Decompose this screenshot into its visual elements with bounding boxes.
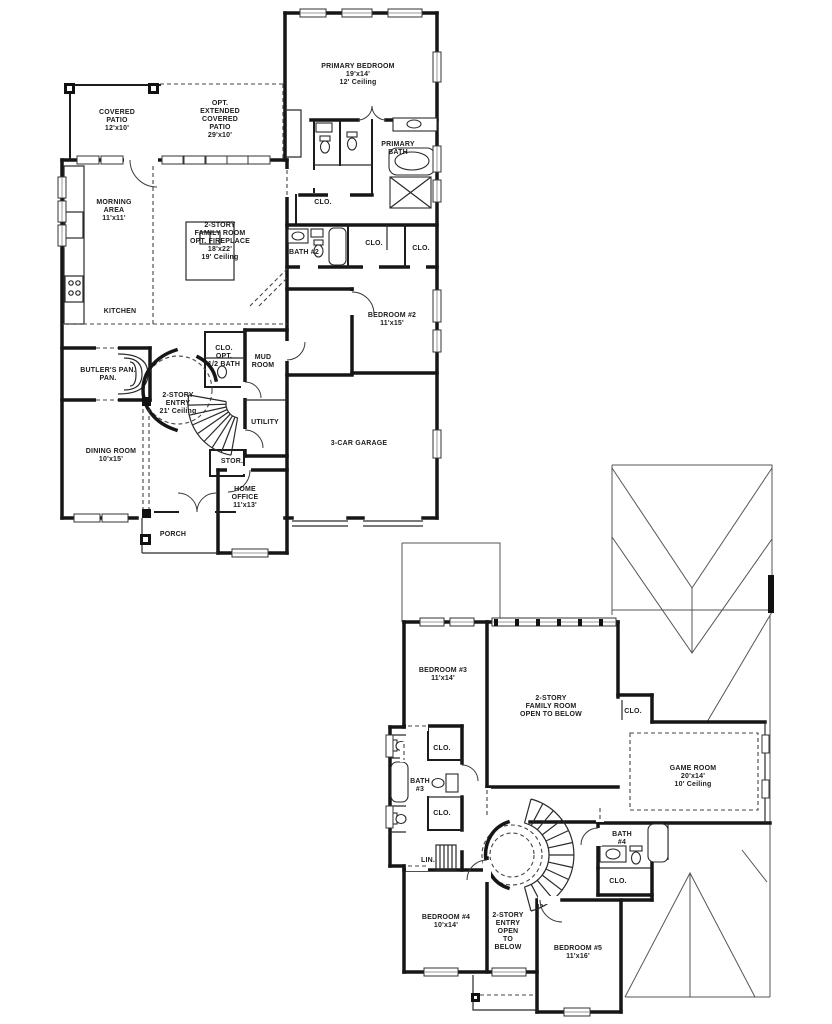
label-primary-bath: PRIMARYBATH (381, 141, 414, 157)
label-morning-area: MORNINGAREA11'x11' (96, 199, 131, 223)
first-floor-plan (58, 9, 441, 557)
label-clo-opt-half-bath: CLO.OPT.1/2 BATH (208, 345, 240, 369)
label-bath-4: BATH#4 (612, 831, 632, 847)
label-butlers-pantry: BUTLER'S PAN.PAN. (80, 367, 135, 383)
label-porch: PORCH (160, 531, 186, 539)
label-game-room: GAME ROOM20'x14'10' Ceiling (670, 765, 717, 789)
label-bedroom-2: BEDROOM #211'x15' (368, 312, 416, 328)
label-primary-closet: CLO. (314, 199, 332, 207)
label-closet-family: CLO. (624, 708, 642, 716)
label-bath-3: BATH#3 (410, 778, 430, 794)
label-bedroom-5: BEDROOM #511'x16' (554, 945, 602, 961)
label-garage: 3-CAR GARAGE (331, 440, 387, 448)
label-storage: STOR. (221, 458, 243, 466)
label-home-office: HOMEOFFICE11'x13' (232, 486, 259, 510)
floor-plan-page: PRIMARY BEDROOM19'x14'12' Ceiling COVERE… (0, 0, 832, 1024)
label-closet-mid: CLO. (365, 240, 383, 248)
label-covered-patio: COVEREDPATIO12'x10' (99, 109, 135, 133)
label-closet-bath4: CLO. (609, 878, 627, 886)
label-two-story-entry: 2-STORYENTRY21' Ceiling (160, 392, 197, 416)
spiral-stair-second-floor (482, 799, 574, 911)
second-floor-plan (386, 465, 774, 1016)
label-mud-room: MUDROOM (252, 354, 275, 370)
floorplan-drawing (0, 0, 832, 1024)
label-closet-right: CLO. (412, 245, 430, 253)
label-dining-room: DINING ROOM10'x15' (86, 448, 136, 464)
label-primary-bedroom: PRIMARY BEDROOM19'x14'12' Ceiling (321, 63, 394, 87)
label-bedroom-4: BEDROOM #410'x14' (422, 914, 470, 930)
label-family-room-open: 2-STORYFAMILY ROOMOPEN TO BELOW (520, 695, 582, 719)
label-bedroom-3: BEDROOM #311'x14' (419, 667, 467, 683)
label-linen: LIN. (421, 857, 435, 865)
label-opt-extended-covered-patio: OPT.EXTENDEDCOVEREDPATIO29'x10' (200, 100, 240, 140)
label-bath-2: BATH #2 (289, 249, 319, 257)
label-family-room: 2-STORYFAMILY ROOMOPT. FIREPLACE18'x22'1… (190, 222, 250, 262)
label-entry-open: 2-STORYENTRYOPENTOBELOW (492, 912, 523, 952)
label-closet-bath3-top: CLO. (433, 745, 451, 753)
label-kitchen: KITCHEN (104, 308, 137, 316)
label-closet-bath3-bottom: CLO. (433, 810, 451, 818)
label-utility: UTILITY (251, 419, 279, 427)
